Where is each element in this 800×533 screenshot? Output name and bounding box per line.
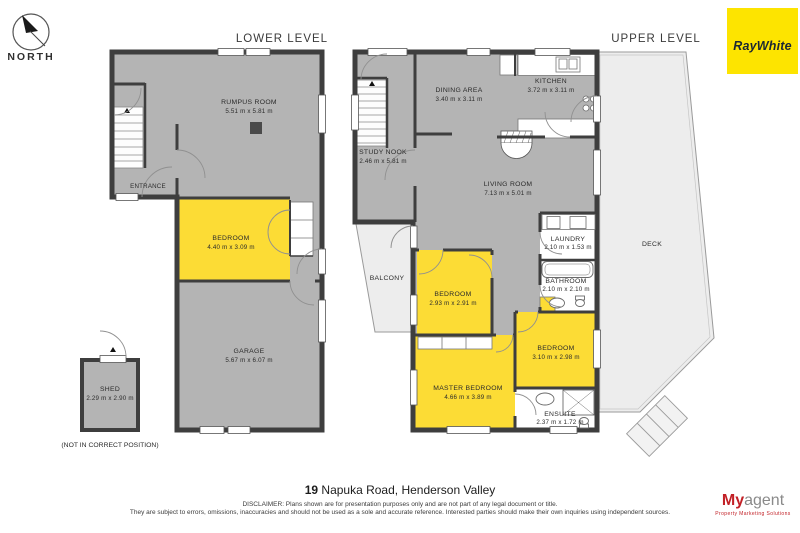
upper-stairs	[357, 80, 387, 146]
shed-dims: 2.29 m x 2.90 m	[86, 395, 133, 402]
disclaimer-line2: They are subject to errors, omissions, i…	[0, 509, 800, 517]
ensuite-dims: 2.37 m x 1.72 m	[536, 419, 583, 426]
deck-area	[597, 52, 714, 456]
dining-label: DINING AREA	[435, 87, 482, 94]
myagent-logo: Myagent Property Marketing Solutions	[706, 494, 800, 521]
lower-closet	[290, 202, 313, 256]
laundry-fixtures	[542, 215, 595, 230]
myagent-tagline: Property Marketing Solutions	[706, 507, 800, 521]
shed-door-swing	[100, 331, 126, 357]
bathroom-label: BATHROOM	[545, 278, 586, 285]
ensuite-label: ENSUITE	[544, 411, 576, 418]
kitchen-label: KITCHEN	[535, 78, 567, 85]
entrance-label: ENTRANCE	[130, 183, 166, 190]
shed-plan: SHED 2.29 m x 2.90 m (NOT IN CORRECT POS…	[61, 331, 158, 449]
master-bedroom-label: MASTER BEDROOM	[433, 385, 503, 392]
shed-door-marker	[110, 347, 116, 352]
master-bedroom-dims: 4.66 m x 3.89 m	[444, 394, 491, 401]
master-closet	[418, 337, 492, 349]
property-address: 19 Napuka Road, Henderson Valley	[0, 483, 800, 497]
disclaimer-line1: DISCLAIMER: Plans shown are for presenta…	[0, 501, 800, 509]
bedroom3-dims: 3.10 m x 2.98 m	[532, 354, 579, 361]
deck-label: DECK	[642, 241, 662, 248]
upper-level-plan: STUDY NOOK 2.46 m x 5.81 m DINING AREA 3…	[352, 49, 715, 457]
lower-level-plan: RUMPUS ROOM 5.51 m x 5.81 m ENTRANCE BED…	[112, 49, 326, 434]
lower-column	[250, 122, 262, 134]
laundry-label: LAUNDRY	[551, 236, 586, 243]
address-number: 19	[305, 483, 318, 497]
lower-bedroom-dims: 4.40 m x 3.09 m	[207, 244, 254, 251]
bedroom2-label: BEDROOM	[434, 291, 471, 298]
shed-position-note: (NOT IN CORRECT POSITION)	[61, 442, 158, 449]
shed-label: SHED	[100, 386, 120, 393]
bedroom2-dims: 2.93 m x 2.91 m	[429, 300, 476, 307]
kitchen-dims: 3.72 m x 3.11 m	[528, 87, 575, 94]
floorplan-drawing: RUMPUS ROOM 5.51 m x 5.81 m ENTRANCE BED…	[0, 0, 800, 533]
garage-dims: 5.67 m x 6.07 m	[225, 357, 272, 364]
study-nook-label: STUDY NOOK	[359, 149, 407, 156]
living-dims: 7.13 m x 5.01 m	[484, 190, 531, 197]
bedroom3-label: BEDROOM	[537, 345, 574, 352]
dining-dims: 3.40 m x 3.11 m	[436, 96, 483, 103]
bathroom-dims: 2.10 m x 2.10 m	[542, 286, 589, 293]
lower-stairs	[114, 107, 143, 168]
laundry-dims: 2.10 m x 1.53 m	[544, 244, 591, 251]
garage-label: GARAGE	[234, 348, 265, 355]
study-nook-dims: 2.46 m x 5.81 m	[359, 158, 406, 165]
floorplan-page: NORTH LOWER LEVEL UPPER LEVEL RayWhite	[0, 0, 800, 533]
living-label: LIVING ROOM	[484, 181, 533, 188]
shed-door-gap	[100, 356, 126, 363]
fireplace	[501, 131, 532, 159]
lower-bedroom-label: BEDROOM	[212, 235, 249, 242]
address-street: Napuka Road, Henderson Valley	[318, 483, 495, 497]
rumpus-room-label: RUMPUS ROOM	[221, 99, 277, 106]
rumpus-room-dims: 5.51 m x 5.81 m	[225, 108, 272, 115]
balcony-label: BALCONY	[370, 275, 405, 282]
